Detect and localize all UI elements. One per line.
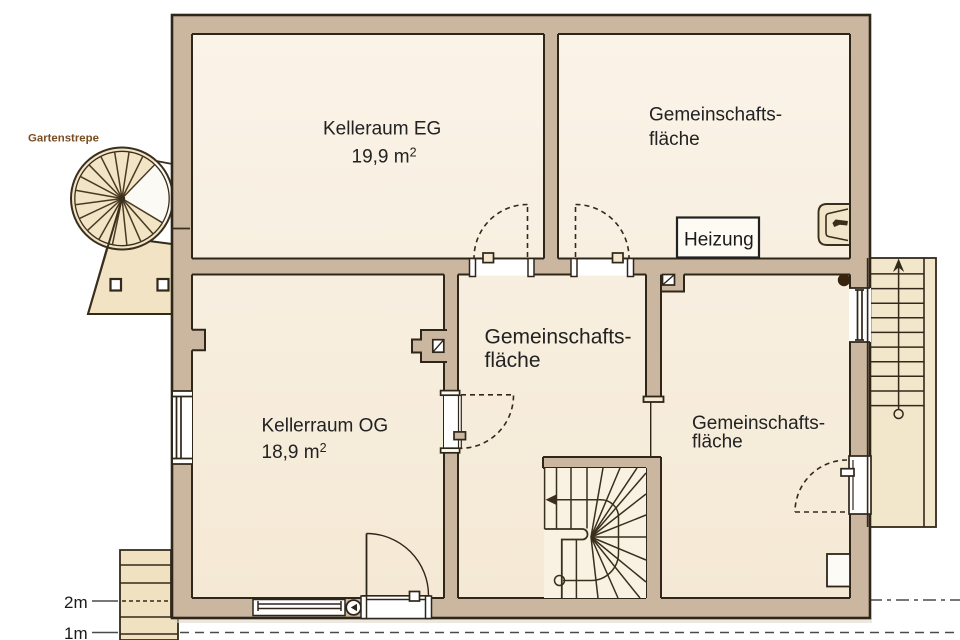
svg-text:fläche: fläche (649, 129, 700, 150)
svg-text:2m: 2m (64, 593, 88, 612)
svg-text:Gemeinschafts-: Gemeinschafts- (485, 326, 632, 349)
svg-text:Heizung: Heizung (684, 230, 754, 251)
svg-text:Kelleraum EG: Kelleraum EG (323, 119, 441, 140)
svg-text:19,9 m2: 19,9 m2 (352, 146, 417, 168)
svg-text:Gemeinschafts-: Gemeinschafts- (649, 105, 782, 126)
svg-text:Kellerraum OG: Kellerraum OG (262, 416, 389, 437)
svg-text:Gartenstrepe: Gartenstrepe (28, 133, 99, 145)
svg-text:fläche: fläche (485, 349, 541, 372)
svg-text:1m: 1m (64, 624, 88, 640)
svg-text:fläche: fläche (692, 432, 743, 453)
svg-text:18,9 m2: 18,9 m2 (262, 441, 327, 463)
